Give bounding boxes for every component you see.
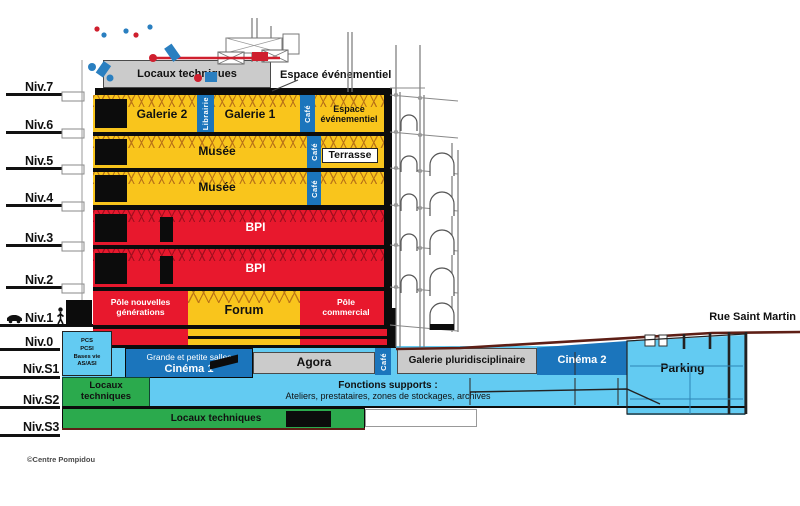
cafe-label: Café: [303, 105, 312, 123]
agora-block: Agora: [253, 352, 375, 374]
east-edge-column: [384, 95, 392, 325]
level-line-niv0: [0, 348, 60, 351]
pole-nouvelles-label: Pôle nouvelles générations: [95, 293, 186, 323]
galerie-2-label: Galerie 2: [127, 102, 197, 128]
cafe-label: Café: [379, 353, 388, 371]
pole-commercial-block: Pôle commercial: [300, 291, 392, 325]
pole-commercial-label: Pôle commercial: [302, 293, 390, 323]
core-block: [95, 253, 127, 284]
core-block: [95, 214, 127, 242]
locaux-s2-label: Locaux techniques: [64, 379, 148, 405]
forum-label: Forum: [188, 300, 300, 320]
escalator-base: [430, 324, 454, 330]
pcs-label: PCS PCSI Bases vie AS/ASI: [64, 333, 110, 374]
level-label-niv0: Niv.0: [25, 335, 53, 349]
level-line-niv2: [6, 286, 78, 289]
level-label-niv5: Niv.5: [25, 154, 53, 168]
espace-evenementiel-niv6-label: Espace événementiel: [313, 99, 385, 129]
mezzanine-slab: [188, 336, 392, 339]
cafe-strip-niv5: Café: [307, 136, 321, 168]
locaux-s3-label: Locaux techniques: [121, 412, 311, 426]
pole-nouvelles-block: Pôle nouvelles générations: [93, 291, 188, 325]
credit-text: ©Centre Pompidou: [27, 455, 95, 464]
parking-label: Parking: [635, 361, 730, 377]
level-line-nivs1: [0, 376, 60, 379]
level-label-nivs2: Niv.S2: [23, 393, 59, 407]
locaux-s2-block: Locaux techniques: [62, 377, 150, 407]
cafe-label: Café: [310, 180, 319, 198]
roof-slab: [95, 88, 392, 95]
facade-nodes: [394, 93, 422, 292]
cinema1-block: Grande et petite salles Cinéma 1: [125, 348, 253, 378]
roof-espace-evenementiel-label: Espace événementiel: [280, 68, 400, 82]
cinema1-label: Cinéma 1: [126, 363, 252, 376]
agora-label: Agora: [254, 353, 374, 373]
terrasse-label: Terrasse: [322, 148, 378, 163]
core-block: [95, 99, 127, 128]
parking-block: Parking: [627, 335, 745, 415]
fonctions-supports: Fonctions supports : Ateliers, prestatai…: [228, 380, 548, 405]
level-line-niv6: [6, 131, 78, 134]
roof-plant-room: Locaux techniques: [103, 60, 271, 88]
fonctions-supports-title: Fonctions supports :: [228, 380, 548, 391]
level-label-niv6: Niv.6: [25, 118, 53, 132]
level-line-niv7: [6, 93, 78, 96]
cinema2-label: Cinéma 2: [537, 351, 627, 369]
s3-base-line: [62, 428, 365, 430]
roof-plant-room-label: Locaux techniques: [104, 61, 270, 87]
locaux-s3-block: Locaux techniques: [62, 408, 365, 429]
bpi-2-label: BPI: [127, 258, 384, 280]
level-label-nivs3: Niv.S3: [23, 420, 59, 434]
escalator-tube-arches: [430, 153, 454, 330]
rue-saint-martin-label: Rue Saint Martin: [700, 311, 796, 324]
level-line-niv5: [6, 167, 78, 170]
librairie-label: Librairie: [201, 97, 210, 130]
musee-5-label: Musée: [127, 142, 307, 162]
fonctions-supports-desc: Ateliers, prestataires, zones de stockag…: [228, 391, 548, 401]
level-line-nivs3: [0, 434, 60, 437]
galerie-1-label: Galerie 1: [212, 102, 288, 128]
level-label-niv4: Niv.4: [25, 191, 53, 205]
pcs-block: PCS PCSI Bases vie AS/ASI: [62, 331, 112, 376]
level-label-niv2: Niv.2: [25, 273, 53, 287]
pompidou-section-diagram: Niv.7 Niv.6 Niv.5 Niv.4 Niv.3 Niv.2 Niv.…: [0, 0, 800, 506]
level-label-nivs1: Niv.S1: [23, 362, 59, 376]
s3-void-outline: [365, 409, 477, 427]
escalator-inner-arches: [401, 115, 417, 293]
street-pier: [66, 300, 92, 326]
person-icon: [56, 307, 65, 325]
cafe-strip-niv4: Café: [307, 172, 321, 205]
galerie-pluri-label: Galerie pluridisciplinaire: [398, 349, 536, 373]
core-block: [95, 175, 127, 202]
level-label-niv3: Niv.3: [25, 231, 53, 245]
level-line-niv4: [6, 204, 78, 207]
galerie-pluri-block: Galerie pluridisciplinaire: [397, 348, 537, 374]
car-icon: [6, 313, 23, 324]
level-line-nivs2: [0, 406, 60, 409]
bpi-3-label: BPI: [127, 217, 384, 239]
level-label-niv1: Niv.1: [25, 311, 53, 325]
s3-void: [286, 411, 331, 427]
facade-floor-lines: [390, 88, 458, 331]
cafe-strip-s1: Café: [375, 348, 391, 375]
core-block: [95, 139, 127, 165]
musee-4-label: Musée: [127, 178, 307, 198]
cafe-label: Café: [310, 143, 319, 161]
tie-anchors: [62, 60, 84, 300]
level-label-niv7: Niv.7: [25, 80, 53, 94]
level-line-niv3: [6, 244, 78, 247]
